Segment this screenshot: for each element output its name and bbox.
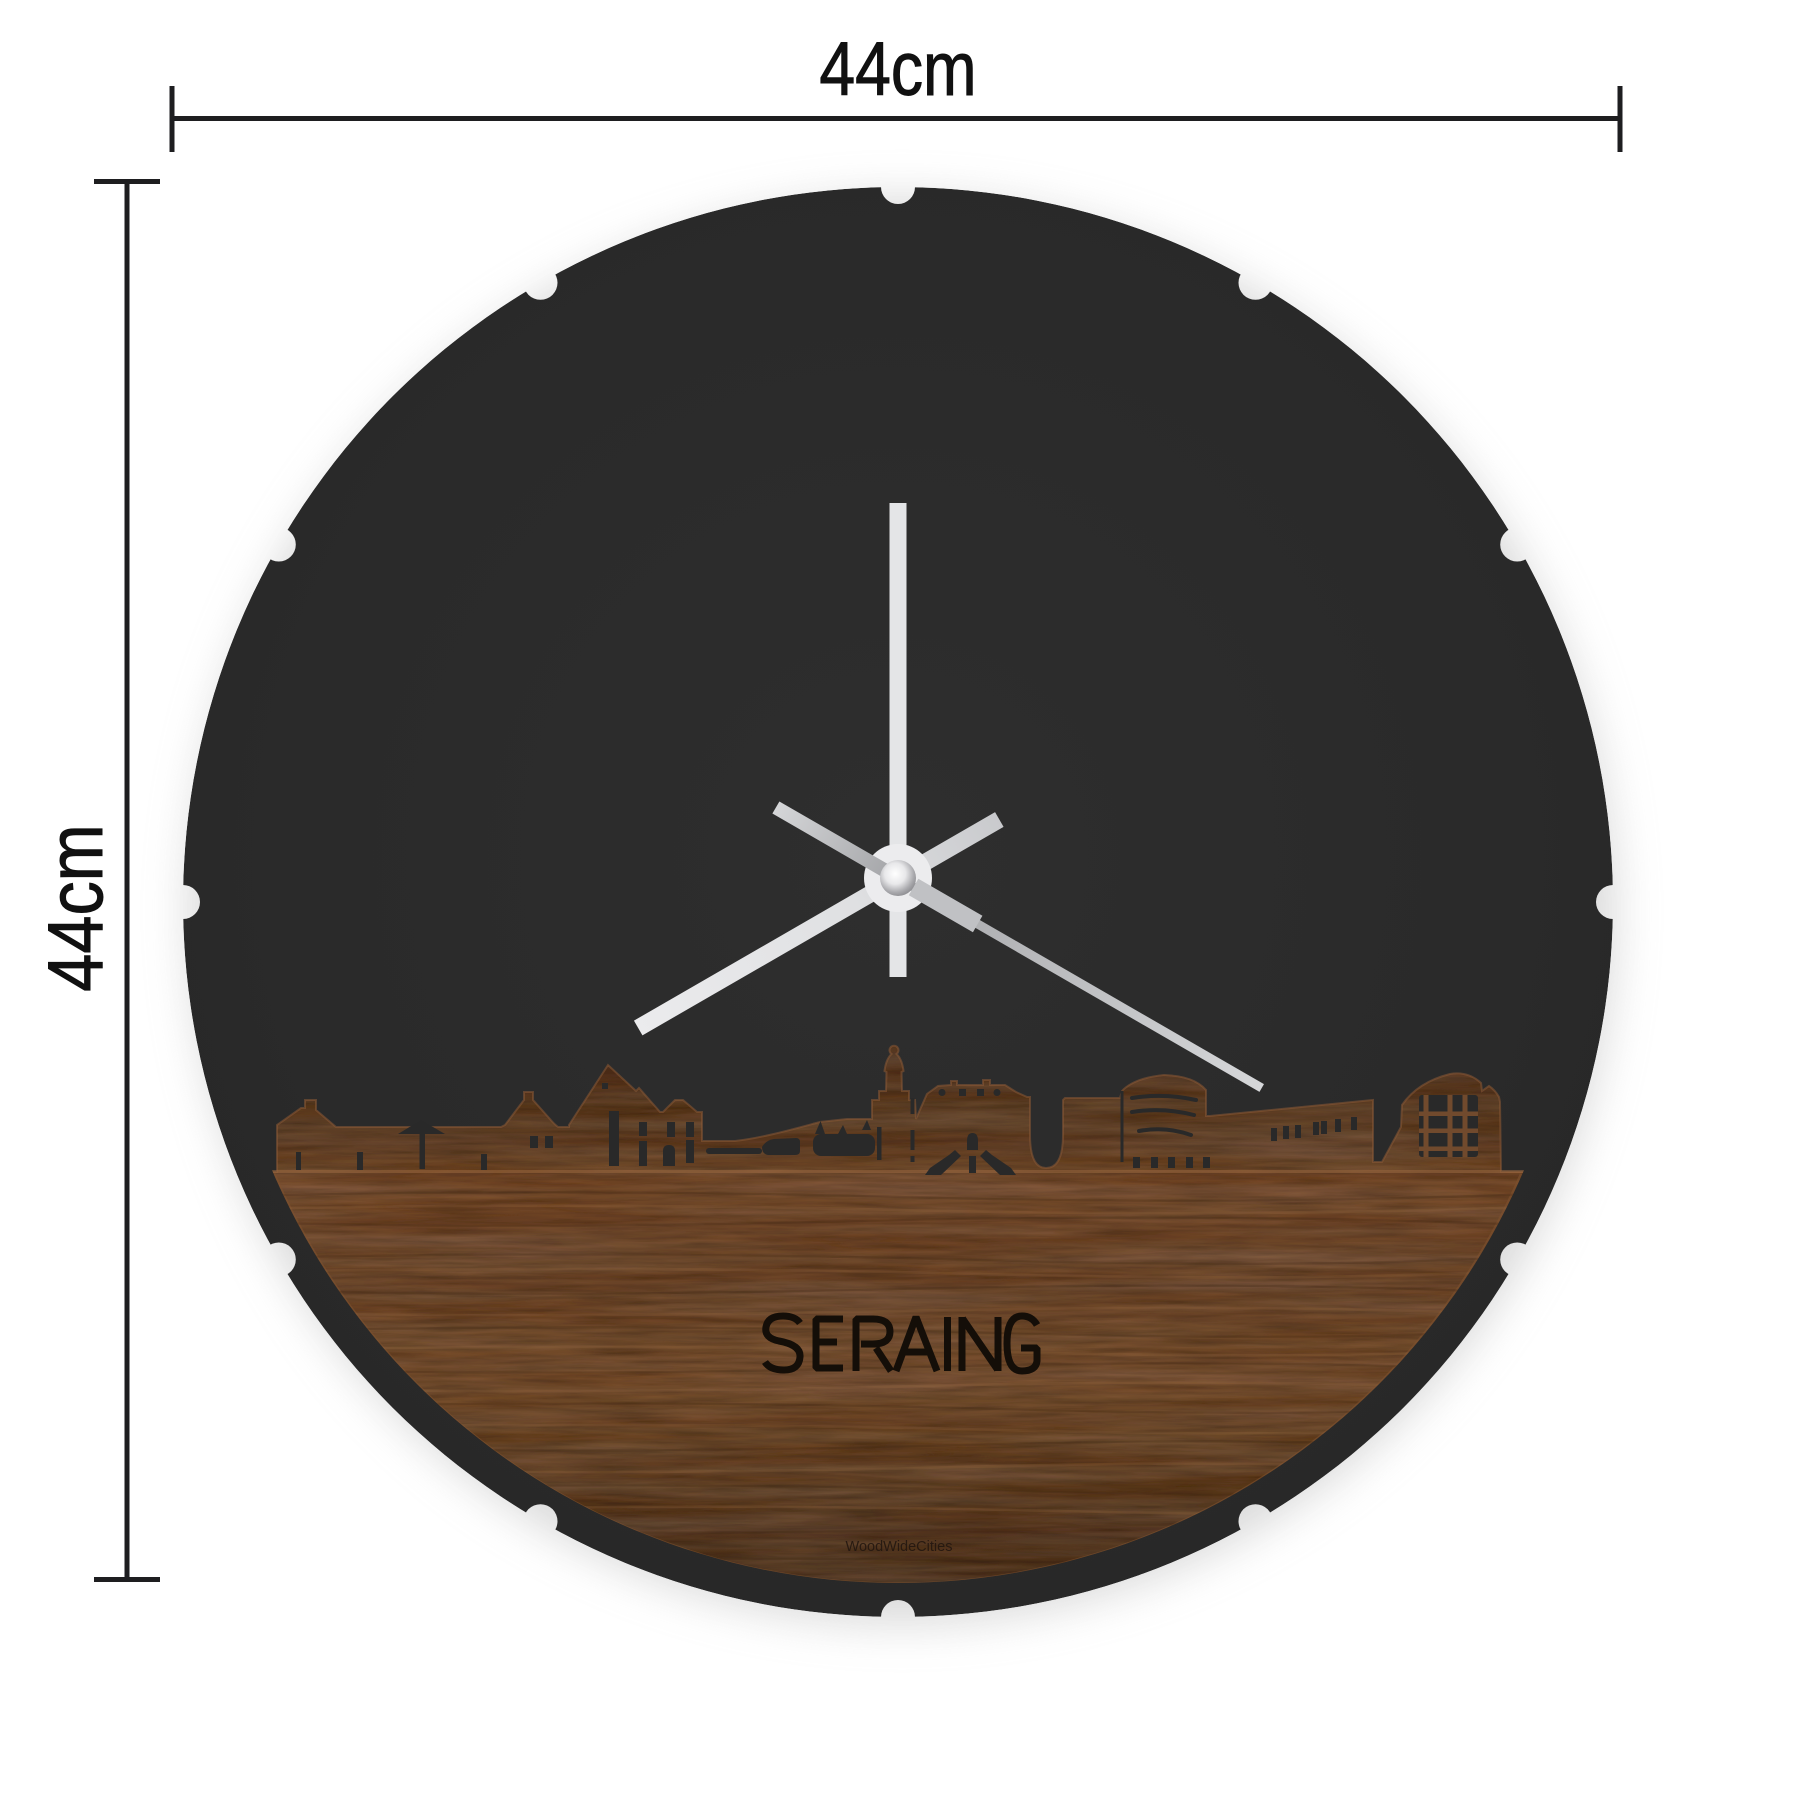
- svg-text:WoodWideCities: WoodWideCities: [846, 1539, 953, 1555]
- svg-text:44cm: 44cm: [819, 26, 976, 111]
- svg-text:44cm: 44cm: [32, 824, 119, 991]
